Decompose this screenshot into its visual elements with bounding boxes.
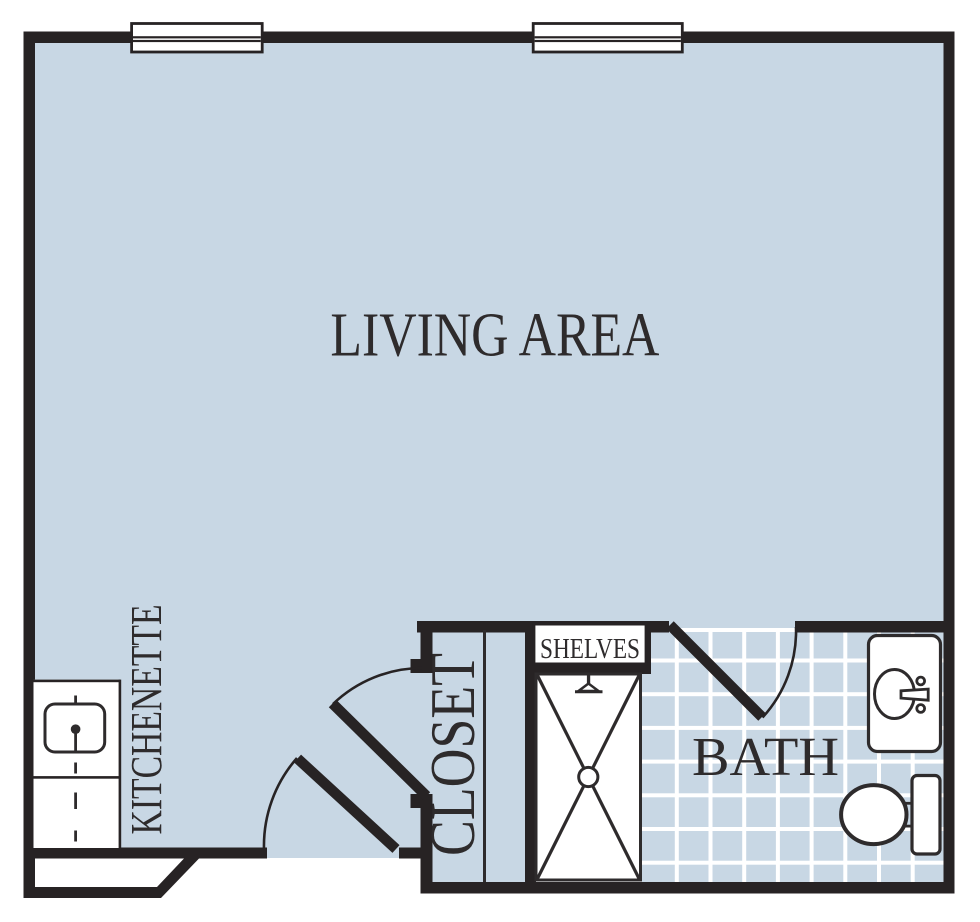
svg-text:SHELVES: SHELVES <box>540 634 640 665</box>
svg-text:CLOSET: CLOSET <box>417 653 488 856</box>
svg-text:KITCHENETTE: KITCHENETTE <box>122 605 171 835</box>
svg-text:BATH: BATH <box>692 727 839 788</box>
svg-text:LIVING AREA: LIVING AREA <box>330 302 659 370</box>
